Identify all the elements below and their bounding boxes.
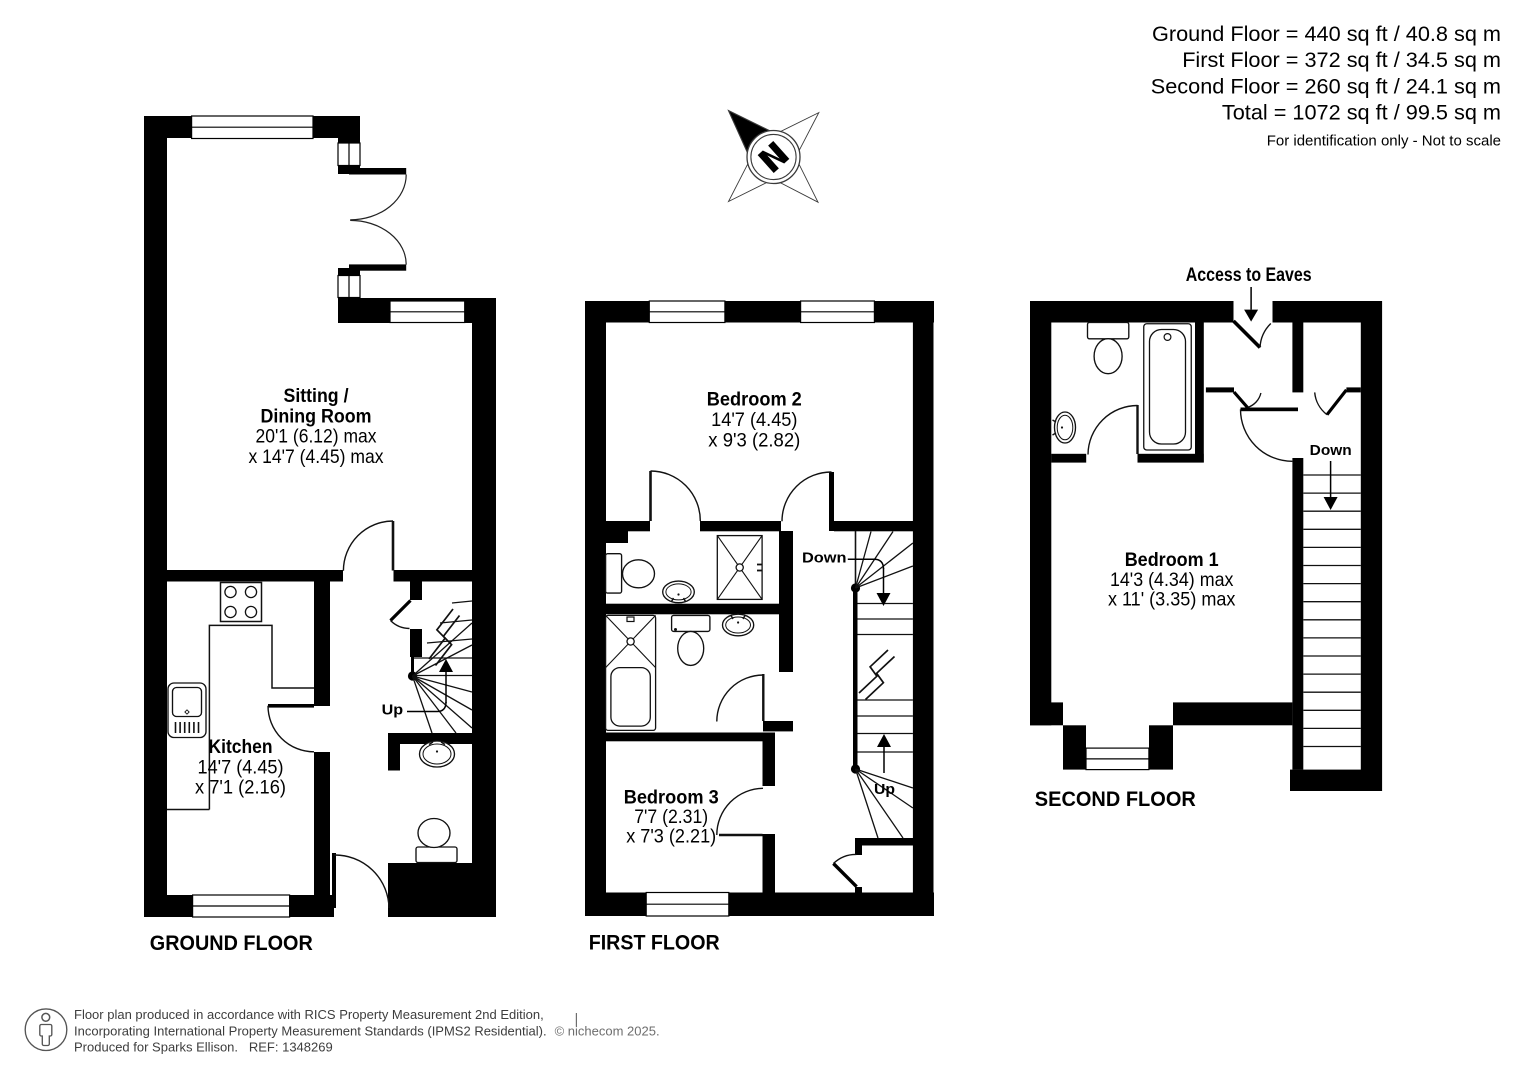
svg-text:Bedroom 2: Bedroom 2	[707, 389, 802, 411]
svg-text:Down: Down	[802, 551, 847, 567]
svg-text:Up: Up	[874, 782, 895, 798]
svg-text:14'7 (4.45): 14'7 (4.45)	[711, 409, 797, 431]
svg-text:20'1 (6.12) max: 20'1 (6.12) max	[256, 426, 377, 448]
svg-text:For identification only - Not: For identification only - Not to scale	[1267, 133, 1501, 150]
svg-text:x 11' (3.35) max: x 11' (3.35) max	[1108, 589, 1236, 611]
svg-text:GROUND FLOOR: GROUND FLOOR	[150, 932, 313, 955]
svg-text:Dining Room: Dining Room	[261, 405, 372, 427]
svg-text:Produced for Sparks Ellison.: Produced for Sparks Ellison. REF: 134826…	[74, 1040, 333, 1055]
svg-text:Down: Down	[1310, 443, 1352, 459]
svg-text:x 9'3 (2.82): x 9'3 (2.82)	[708, 430, 800, 452]
svg-text:Up: Up	[382, 703, 404, 719]
svg-text:© nichecom 2025.: © nichecom 2025.	[555, 1023, 660, 1038]
svg-text:x 14'7 (4.45) max: x 14'7 (4.45) max	[249, 446, 384, 468]
svg-text:FIRST FLOOR: FIRST FLOOR	[589, 932, 720, 955]
svg-text:Sitting /: Sitting /	[284, 385, 350, 407]
svg-text:Total = 1072 sq ft / 99.5 sq m: Total = 1072 sq ft / 99.5 sq m	[1222, 100, 1501, 125]
svg-text:Ground Floor = 440 sq ft / 40.: Ground Floor = 440 sq ft / 40.8 sq m	[1152, 21, 1501, 46]
svg-text:SECOND FLOOR: SECOND FLOOR	[1035, 788, 1196, 811]
svg-text:Access to Eaves: Access to Eaves	[1186, 264, 1312, 286]
svg-text:Floor plan produced in accorda: Floor plan produced in accordance with R…	[74, 1007, 544, 1022]
svg-text:Second Floor = 260 sq ft / 24.: Second Floor = 260 sq ft / 24.1 sq m	[1151, 74, 1501, 99]
svg-text:14'3 (4.34) max: 14'3 (4.34) max	[1110, 569, 1234, 591]
svg-text:First Floor = 372 sq ft / 34.5: First Floor = 372 sq ft / 34.5 sq m	[1182, 47, 1501, 72]
svg-text:x 7'3 (2.21): x 7'3 (2.21)	[626, 826, 716, 848]
svg-text:x 7'1 (2.16): x 7'1 (2.16)	[195, 777, 286, 799]
svg-text:14'7 (4.45): 14'7 (4.45)	[198, 756, 284, 778]
svg-text:Bedroom 1: Bedroom 1	[1125, 549, 1219, 571]
svg-text:Incorporating International Pr: Incorporating International Property Mea…	[74, 1023, 547, 1038]
svg-text:Kitchen: Kitchen	[209, 736, 273, 758]
